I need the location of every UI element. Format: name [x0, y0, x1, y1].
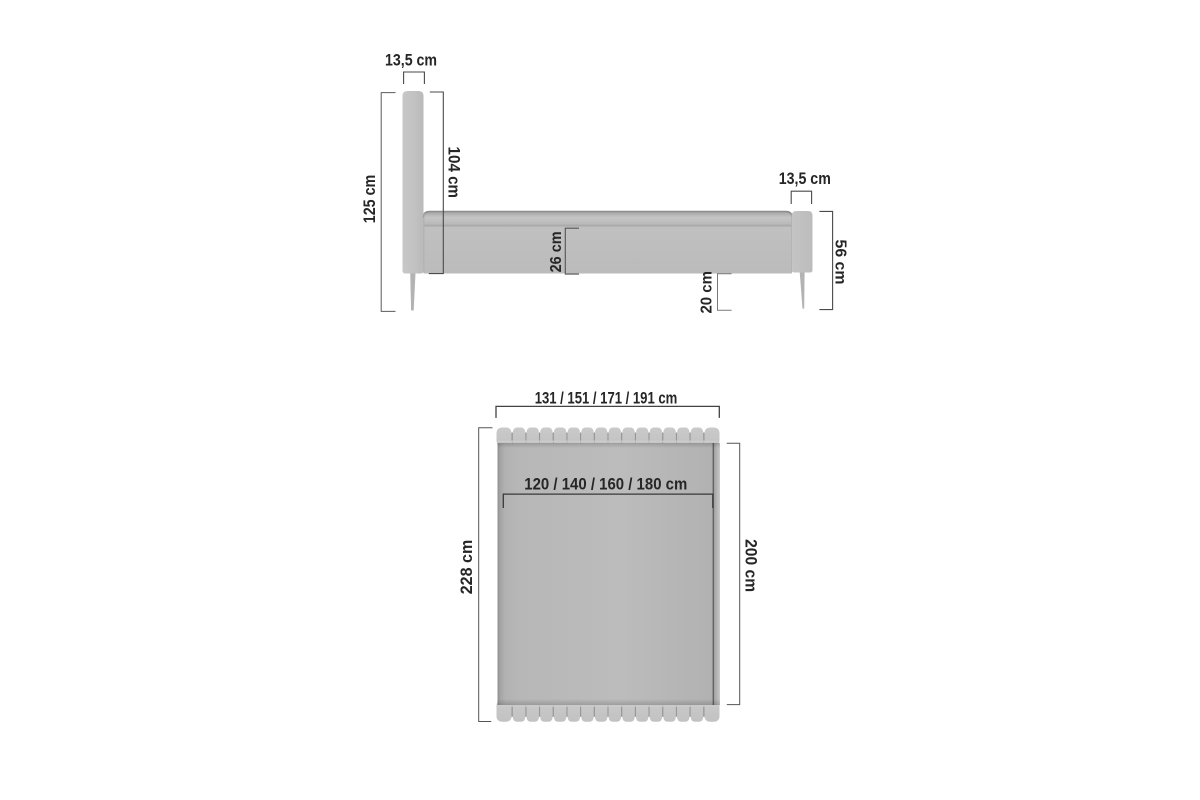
- svg-text:20 cm: 20 cm: [699, 271, 716, 314]
- svg-text:120 / 140 / 160 / 180 cm: 120 / 140 / 160 / 180 cm: [524, 474, 687, 493]
- svg-text:13,5 cm: 13,5 cm: [385, 51, 437, 69]
- svg-text:56 cm: 56 cm: [832, 240, 849, 285]
- svg-text:131 / 151 / 171 / 191 cm: 131 / 151 / 171 / 191 cm: [535, 389, 678, 407]
- svg-text:26 cm: 26 cm: [548, 231, 565, 272]
- svg-text:104 cm: 104 cm: [445, 147, 463, 199]
- svg-text:200 cm: 200 cm: [742, 539, 760, 592]
- svg-text:125 cm: 125 cm: [361, 175, 379, 224]
- svg-text:13,5 cm: 13,5 cm: [779, 170, 831, 188]
- svg-text:228 cm: 228 cm: [458, 540, 476, 595]
